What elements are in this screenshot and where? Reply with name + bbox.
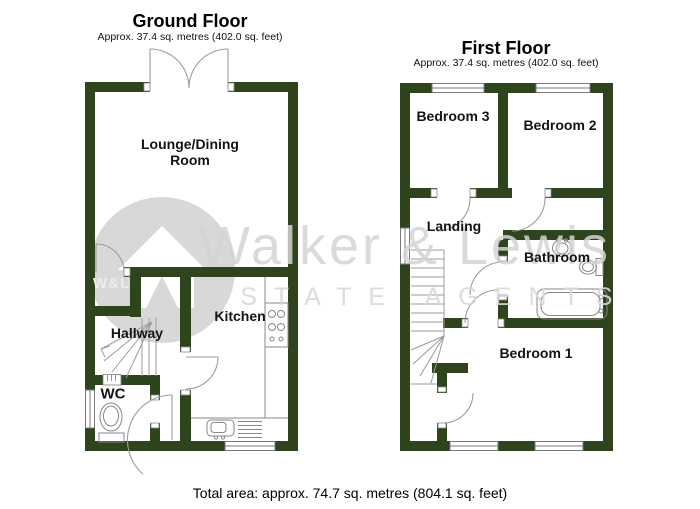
room-label-lounge-dining: Lounge/Dining Room [141, 136, 239, 168]
room-label-bedroom1: Bedroom 1 [499, 345, 572, 361]
first-floor-subtitle: Approx. 37.4 sq. metres (402.0 sq. feet) [413, 57, 598, 69]
watermark-brand-text: Walker & Lewis [199, 215, 611, 277]
wc-folding-door-icon [103, 375, 121, 386]
watermark-monogram-text: W&L [93, 275, 130, 292]
watermark-tagline-text: ESTATE AGENTS [207, 283, 630, 312]
room-label-bedroom2: Bedroom 2 [523, 117, 596, 133]
total-area-text: Total area: approx. 74.7 sq. metres (804… [193, 485, 507, 501]
room-label-bathroom: Bathroom [524, 249, 590, 265]
kitchen-sink-icon [207, 420, 262, 439]
room-label-bedroom3: Bedroom 3 [416, 108, 489, 124]
first-floor-title: First Floor [462, 38, 551, 59]
wc-toilet-icon [99, 403, 124, 442]
room-label-landing: Landing [427, 218, 481, 234]
floorplan-page: Walker & Lewis ESTATE AGENTS W&L Ground … [0, 0, 700, 509]
room-label-kitchen: Kitchen [214, 308, 265, 324]
ground-floor-subtitle: Approx. 37.4 sq. metres (402.0 sq. feet) [97, 31, 282, 43]
room-label-wc: WC [101, 385, 126, 402]
ground-floor-title: Ground Floor [133, 11, 248, 32]
room-label-hallway: Hallway [111, 325, 163, 341]
